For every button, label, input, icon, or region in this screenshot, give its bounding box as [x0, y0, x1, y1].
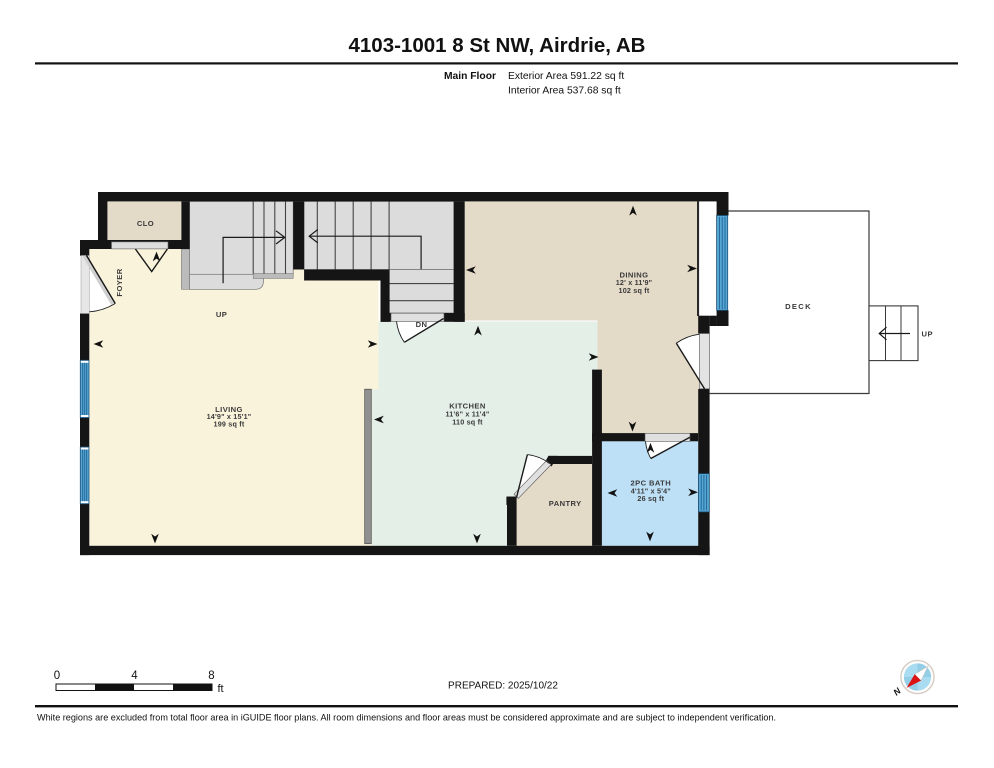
- svg-text:UP: UP: [922, 329, 934, 338]
- svg-text:4: 4: [131, 670, 138, 682]
- svg-text:8: 8: [208, 670, 214, 682]
- svg-text:UP: UP: [216, 310, 227, 319]
- svg-text:26 sq ft: 26 sq ft: [637, 494, 664, 503]
- svg-text:Interior Area 537.68 sq ft: Interior Area 537.68 sq ft: [508, 86, 621, 97]
- svg-text:White regions are excluded fro: White regions are excluded from total fl…: [37, 713, 776, 723]
- svg-text:199 sq ft: 199 sq ft: [214, 420, 245, 429]
- svg-text:Main Floor: Main Floor: [444, 71, 496, 82]
- svg-text:Exterior Area 591.22 sq ft: Exterior Area 591.22 sq ft: [508, 71, 624, 82]
- svg-text:PANTRY: PANTRY: [549, 499, 582, 508]
- svg-text:CLO: CLO: [137, 219, 154, 228]
- svg-text:4103-1001 8 St NW, Airdrie, AB: 4103-1001 8 St NW, Airdrie, AB: [349, 34, 646, 57]
- svg-text:0: 0: [54, 670, 60, 682]
- svg-text:FOYER: FOYER: [115, 268, 124, 296]
- svg-text:102 sq ft: 102 sq ft: [619, 286, 650, 295]
- svg-text:DECK: DECK: [785, 302, 812, 311]
- svg-text:PREPARED: 2025/10/22: PREPARED: 2025/10/22: [448, 681, 558, 692]
- svg-text:DN: DN: [416, 320, 428, 329]
- svg-text:ft: ft: [218, 683, 224, 695]
- svg-text:110 sq ft: 110 sq ft: [452, 417, 483, 426]
